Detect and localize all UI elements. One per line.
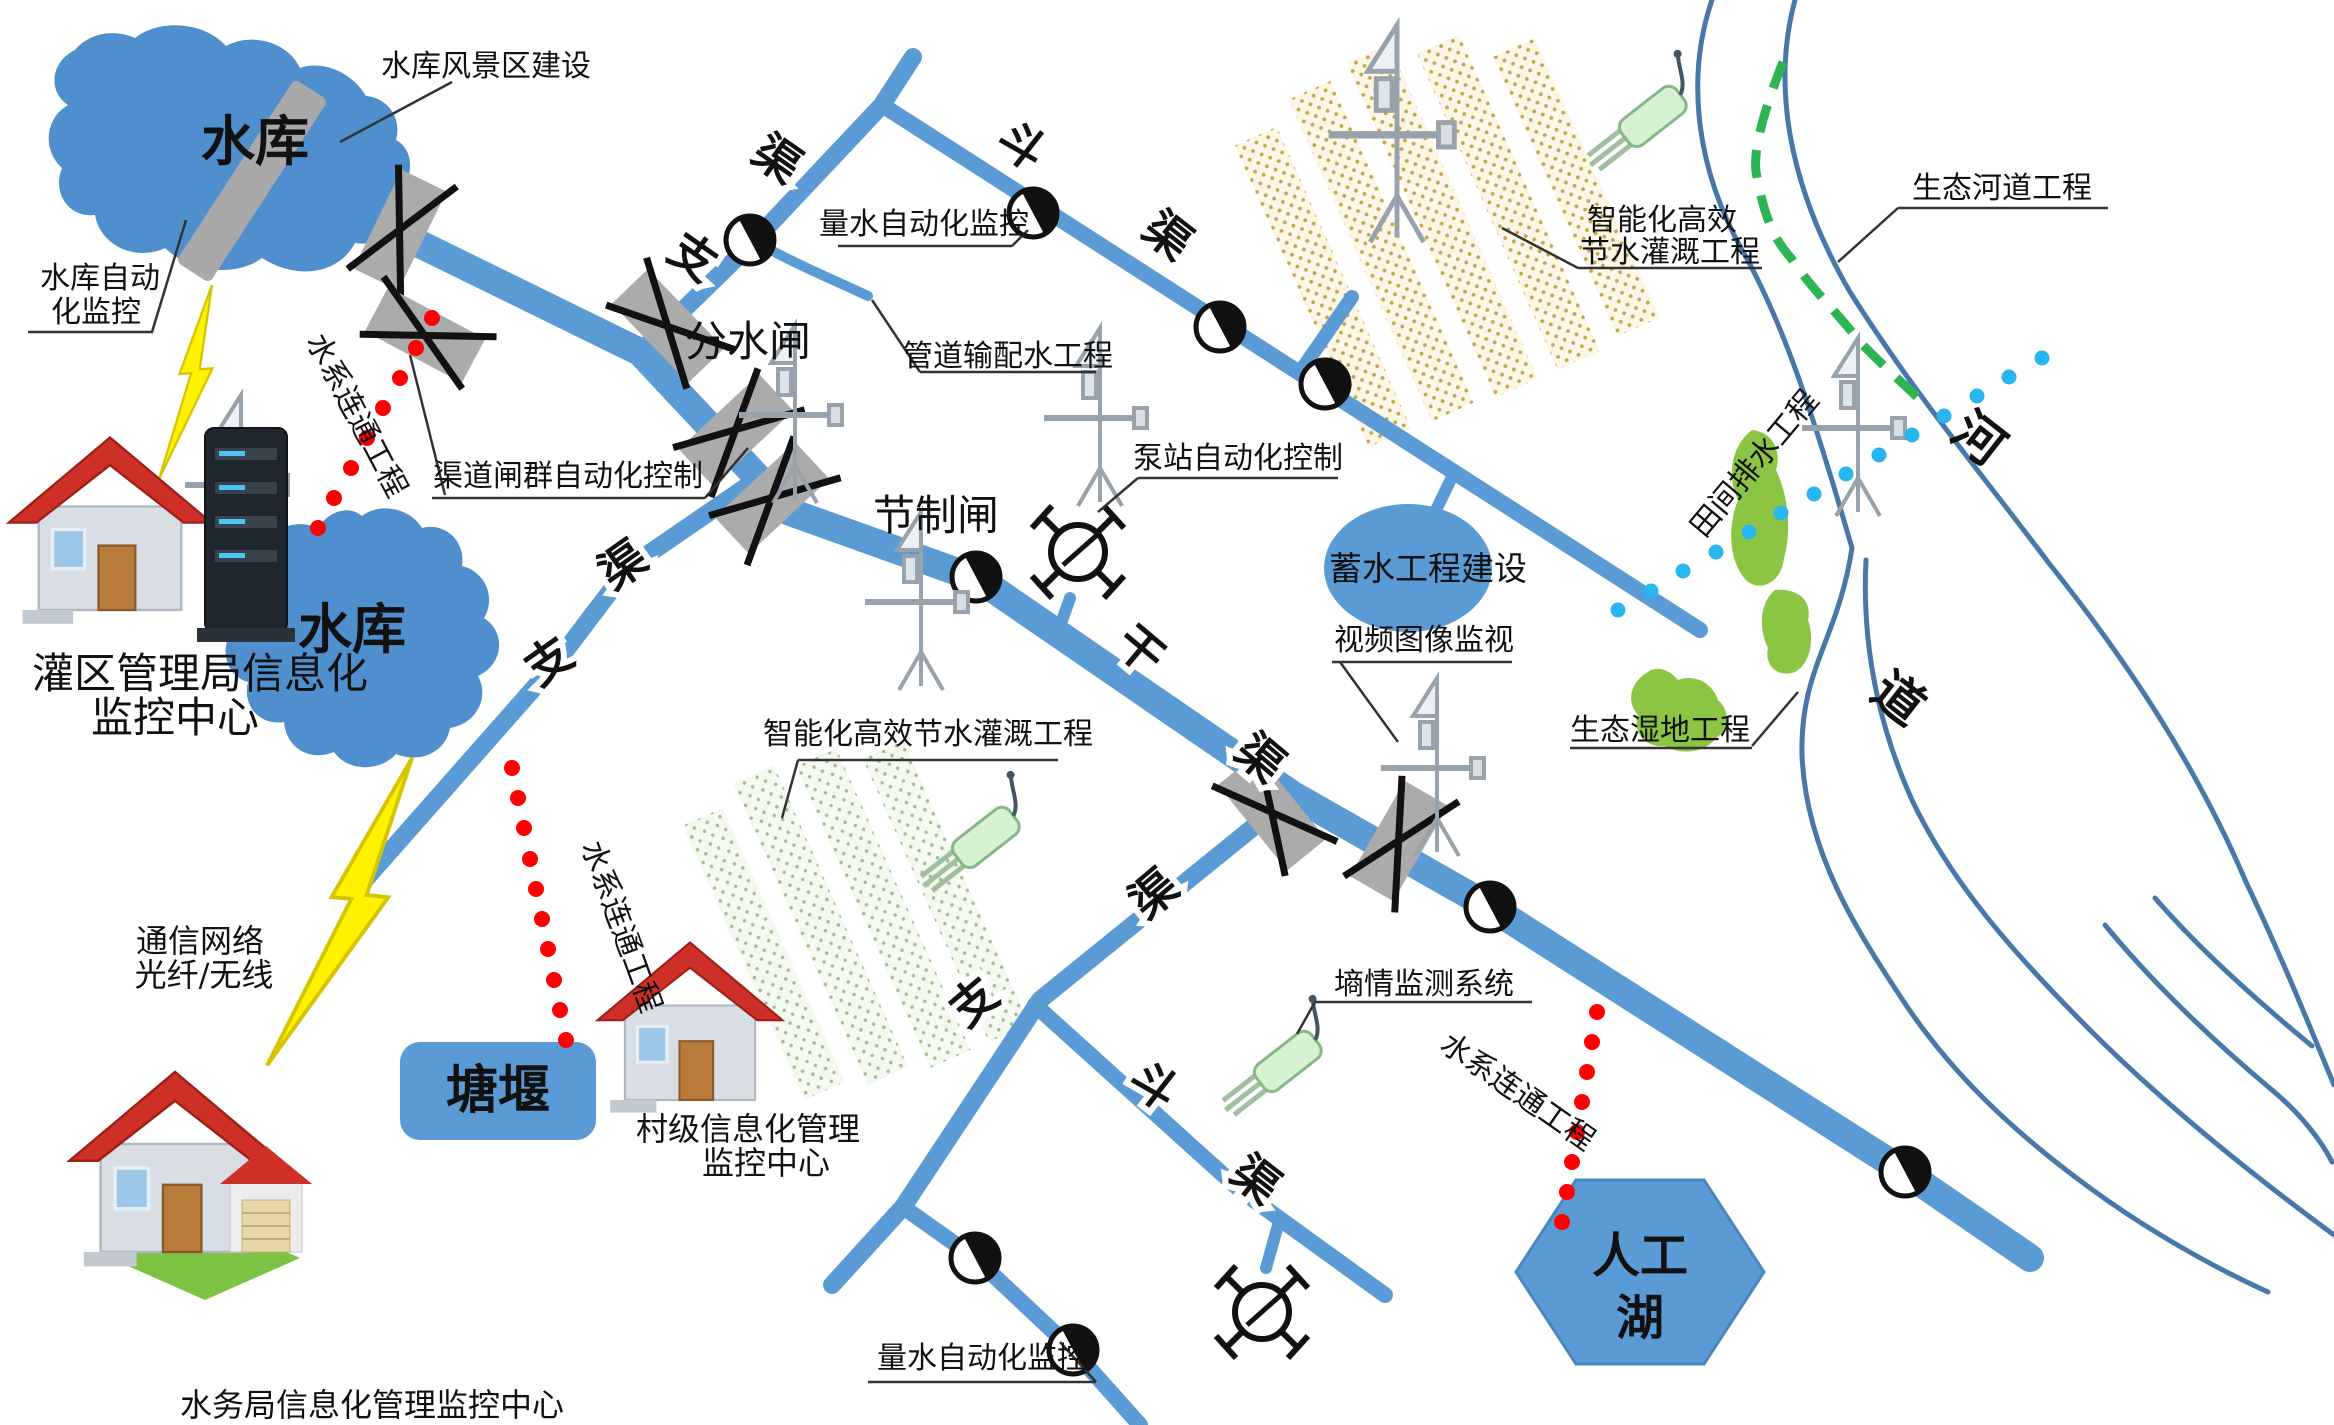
flow-monitor-bottom-label: 量水自动化监控 [877,1341,1087,1376]
eco-river-label: 生态河道工程 [1912,171,2092,206]
admin-center-building [9,428,295,642]
canal-char-qu-left: 渠 [588,530,657,601]
smart-irrigation-top-label-1: 智能化高效 [1587,203,1737,238]
water-connect-dots-2 [504,760,574,1048]
wetland-blob-2 [1762,590,1811,674]
gate-icon [354,277,496,392]
soil-sensor-icon [1567,48,1711,177]
water-connect-label-2: 水系连通工程 [574,836,668,1017]
field-drainage-dots [1611,351,2050,618]
soil-sensor-icon [1202,993,1346,1122]
reservoir-auto-label-1: 水库自动 [40,261,160,296]
comm-label-2: 光纤/无线 [135,956,274,994]
lightning-icon [267,743,427,1085]
server-icon [197,428,295,642]
bureau-center-building [69,1072,312,1300]
river-middle-channel [1865,560,2334,1235]
village-center-label-1: 村级信息化管理 [636,1110,860,1148]
flow-monitor-top-label: 量水自动化监控 [819,207,1029,242]
reservoir-auto-label-2: 化监控 [51,295,141,330]
scenic-label: 水库风景区建设 [381,49,591,84]
metering-branch [903,1207,1140,1425]
pump-icon [1032,506,1124,598]
water-connect-label-1: 水系连通工程 [299,328,414,503]
lake-label-1: 人工 [1592,1228,1688,1284]
pump-stub-bottom [1266,1218,1280,1268]
admin-center-label-1: 灌区管理局信息化 [32,649,368,698]
house-icon [9,438,211,624]
village-center-label-2: 监控中心 [702,1144,830,1182]
eco-wetland-label: 生态湿地工程 [1570,713,1750,748]
eco-river-dashed-line [1756,62,1919,399]
control-gate-label: 节制闸 [873,491,999,540]
smart-irrigation-mid-label: 智能化高效节水灌溉工程 [763,717,1093,752]
pump-auto-label: 泵站自动化控制 [1133,441,1343,476]
video-monitor-label: 视频图像监视 [1334,623,1514,658]
river-east-bank [1785,0,2334,1085]
pipeline-label: 管道输配水工程 [903,339,1113,374]
canal-char-dou-bottom: 斗 [1119,1050,1188,1121]
water-connect-label-3: 水系连通工程 [1434,1026,1602,1158]
pump-icon [1216,1266,1308,1358]
canal-char-qu-bottom: 渠 [1221,1144,1290,1215]
schematic-canvas: 河 道 [0,0,2334,1425]
diversion-gate-label: 分水闸 [685,317,811,366]
canal-char-qu-topright: 渠 [1133,200,1202,271]
soil-moisture-label: 墒情监测系统 [1334,967,1514,1002]
storage-project-label: 蓄水工程建设 [1329,549,1527,588]
irrigation-schematic: 河 道 [0,0,2334,1425]
gate-group-label: 渠道闸群自动化控制 [433,459,703,494]
lateral-canal-bottom [1035,1005,1385,1295]
river-char-he: 河 [1941,400,2017,477]
comm-label-1: 通信网络 [136,922,264,960]
reservoir-top-label: 水库 [201,109,309,173]
pond-label: 塘堰 [446,1060,550,1121]
smart-irrigation-top-label-2: 节水灌溉工程 [1580,235,1760,270]
admin-center-label-2: 监控中心 [91,693,259,742]
lake-label-2: 湖 [1616,1290,1664,1346]
canal-network [340,57,2030,1425]
bureau-center-label: 水务局信息化管理监控中心 [180,1386,564,1424]
